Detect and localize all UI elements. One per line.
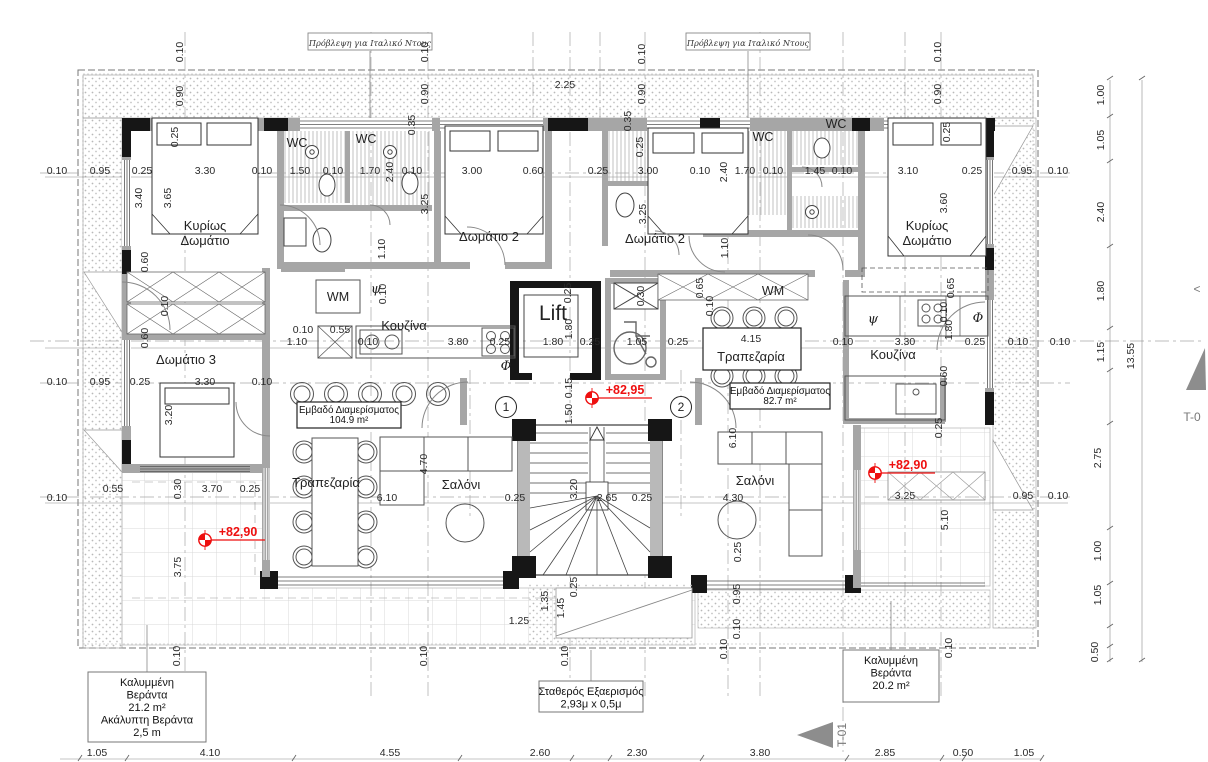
dim-label: 2.40	[384, 162, 396, 183]
room-label: Δωμάτιο	[180, 233, 229, 248]
elevation-marker: +82,95	[586, 383, 652, 408]
info-box-text: 20.2 m²	[872, 680, 910, 692]
dim-label: 0.25	[668, 336, 689, 348]
room-label: Δωμάτιο 3	[156, 352, 216, 367]
grid-bubble-number: 2	[678, 400, 685, 414]
dim-label: 2.65	[597, 492, 618, 504]
room-label: Κυρίως	[906, 218, 948, 233]
dim-label: 0.10	[47, 376, 68, 388]
dim-label: 0.60	[523, 165, 544, 177]
dim-label: 2.75	[1092, 448, 1104, 469]
room-label: Κυρίως	[184, 218, 226, 233]
dim-label: 1.45	[805, 165, 826, 177]
dim-label: 2.40	[718, 162, 730, 183]
dim-label: 0.10	[943, 638, 955, 659]
dim-label: 0.10	[1050, 336, 1071, 348]
dim-label: 2.40	[1095, 202, 1107, 223]
dim-label: 0.10	[358, 336, 379, 348]
fixture-label: WM	[327, 290, 349, 304]
dim-label: 3.00	[638, 165, 659, 177]
dim-label: 0.95	[90, 376, 111, 388]
elevation-value: +82,90	[219, 525, 258, 539]
dim-label: 0.10	[402, 165, 423, 177]
dim-label: 0.65	[945, 278, 957, 299]
dim-label: 4.30	[723, 492, 744, 504]
fixture-label: WC	[826, 117, 847, 131]
dim-label: 0.10	[833, 336, 854, 348]
dim-label: 0.30	[172, 479, 184, 500]
dim-label: 4.15	[741, 333, 762, 345]
dim-label: 0.15	[563, 378, 575, 399]
room-label: Τραπεζαρία	[292, 475, 360, 490]
dim-label: 0.10	[832, 165, 853, 177]
dim-label: 0.60	[139, 252, 151, 273]
fixture-label: Φ	[973, 311, 984, 326]
dim-label: 1.15	[1095, 342, 1107, 363]
dim-label: 0.55	[330, 324, 351, 336]
dim-label: 0.10	[377, 284, 389, 305]
bed-room2-right	[648, 128, 748, 234]
dim-label: 1.00	[1095, 85, 1107, 106]
dim-label: 0.95	[1013, 490, 1034, 502]
fixture-label: ψ	[868, 312, 879, 327]
floor-plan-canvas: Πρόβλεψη για Ιταλικό ΝτουςΠρόβλεψη για Ι…	[0, 0, 1208, 762]
dim-label: 0.10	[252, 376, 273, 388]
note-text: Πρόβλεψη για Ιταλικό Ντους	[308, 38, 432, 48]
fixture-label: WC	[753, 130, 774, 144]
dim-label: 1.05	[87, 747, 108, 759]
dim-label: 0.10	[932, 42, 944, 63]
dim-label: 0.90	[932, 84, 944, 105]
dim-label: 1.00	[1092, 541, 1104, 562]
dim-label: 3.00	[462, 165, 483, 177]
dim-label: 2.60	[530, 747, 551, 759]
dim-label: 3.80	[750, 747, 771, 759]
dim-label: 0.95	[731, 584, 743, 605]
dim-label: 1.70	[735, 165, 756, 177]
dim-label: 0.10	[1008, 336, 1029, 348]
dim-label: 0.10	[252, 165, 273, 177]
dim-label: 3.70	[202, 483, 223, 495]
dim-label: 4.10	[200, 747, 221, 759]
dim-label: 3.40	[133, 188, 145, 209]
dim-label: 0.90	[174, 86, 186, 107]
dim-label: 0.25	[588, 165, 609, 177]
section-triangle	[1186, 348, 1206, 390]
dim-label: 0.10	[159, 296, 171, 317]
dim-label: 0.30	[635, 286, 647, 307]
dim-label: 3.65	[162, 188, 174, 209]
dim-label: 0.10	[293, 324, 314, 336]
dim-label: 0.10	[419, 42, 431, 63]
note-boxes: Πρόβλεψη για Ιταλικό ΝτουςΠρόβλεψη για Ι…	[308, 33, 810, 50]
dim-label: 0.10	[1048, 165, 1069, 177]
dim-label: 0.50	[953, 747, 974, 759]
dim-label: 0.90	[636, 84, 648, 105]
dim-label: 1.05	[1095, 130, 1107, 151]
dim-label: 0.25	[568, 577, 580, 598]
fixture-label: WC	[356, 132, 377, 146]
dim-label: 0.25	[632, 492, 653, 504]
dim-label: 3.30	[895, 336, 916, 348]
dim-label: 0.10	[559, 646, 571, 667]
section-label: T-0	[1183, 410, 1201, 424]
dim-label: 0.95	[1012, 165, 1033, 177]
floor-plan-svg: Πρόβλεψη για Ιταλικό ΝτουςΠρόβλεψη για Ι…	[0, 0, 1208, 762]
fixture-label: Φ	[501, 359, 512, 374]
dim-label: 0.35	[406, 115, 418, 136]
dim-label: 3.20	[568, 479, 580, 500]
dim-label: 0.10	[731, 619, 743, 640]
dim-label: 0.60	[938, 366, 950, 387]
dim-label: 0.10	[323, 165, 344, 177]
dim-label: 0.25	[933, 418, 945, 439]
room-label: Σαλόνι	[442, 477, 481, 492]
info-box-text: Καλυμμένη	[864, 655, 918, 667]
info-box-text: Σταθερός Εξαερισμός	[538, 686, 643, 698]
area-tag-text: 104.9 m²	[330, 415, 369, 426]
dim-label: 1.10	[287, 336, 308, 348]
dim-label: 1.25	[509, 615, 530, 627]
dim-label: 1.05	[627, 336, 648, 348]
dim-label: 3.10	[898, 165, 919, 177]
dim-label: 0.25	[732, 542, 744, 563]
dim-label: 0.25	[965, 336, 986, 348]
dim-label: 1.10	[376, 239, 388, 260]
bed-room2-left	[445, 126, 543, 234]
dim-label: 1.50	[290, 165, 311, 177]
dim-label: 1.80	[1095, 281, 1107, 302]
section-label: <	[1193, 282, 1200, 296]
dim-label: 0.10	[938, 302, 950, 323]
info-box-text: 21.2 m²	[128, 702, 166, 714]
grid-bubble-number: 1	[503, 400, 510, 414]
dim-label: 0.10	[718, 639, 730, 660]
dim-label: 3.60	[938, 193, 950, 214]
fixture-label: WM	[762, 284, 784, 298]
dim-label: 2.30	[627, 747, 648, 759]
dim-label: 1.35	[539, 591, 551, 612]
dim-label: 3.25	[637, 204, 649, 225]
dim-label: 0.10	[636, 44, 648, 65]
dim-label: 6.10	[377, 492, 398, 504]
dim-label: 0.90	[419, 84, 431, 105]
area-tag-text: 82.7 m²	[763, 396, 797, 407]
elevation-value: +82,90	[889, 458, 928, 472]
room-label: Δωμάτιο 2	[459, 229, 519, 244]
dim-label: 0.10	[418, 646, 430, 667]
dim-label: 0.55	[103, 483, 124, 495]
dim-label: 13.55	[1125, 343, 1137, 369]
dim-label: 3.75	[172, 557, 184, 578]
dim-label: 4.55	[380, 747, 401, 759]
dim-label: 0.25	[962, 165, 983, 177]
dim-label: 0.25	[634, 137, 646, 158]
room-label: Κουζίνα	[381, 318, 427, 333]
dim-label: 1.50	[563, 404, 575, 425]
info-box-text: Βεράντα	[127, 690, 169, 702]
dim-label: 1.80	[943, 320, 955, 341]
dim-label: 2.85	[875, 747, 896, 759]
dim-label: 3.30	[195, 376, 216, 388]
dim-label: 0.25	[240, 483, 261, 495]
dim-label: 0.10	[690, 165, 711, 177]
dim-label: 5.10	[939, 510, 951, 531]
dim-label: 0.25	[505, 492, 526, 504]
dining-right	[703, 307, 801, 387]
section-triangle	[797, 722, 833, 748]
dim-label: 4.70	[418, 454, 430, 475]
dim-label: 3.25	[419, 194, 431, 215]
dim-label: 0.10	[47, 492, 68, 504]
info-box-text: Βεράντα	[871, 668, 913, 680]
dim-label: 1.80	[543, 336, 564, 348]
room-label: Δωμάτιο 2	[625, 231, 685, 246]
dim-label: 0.10	[1048, 490, 1069, 502]
dim-label: 0.65	[694, 278, 706, 299]
dim-label: 0.25	[580, 336, 601, 348]
room-label: Σαλόνι	[736, 473, 775, 488]
dim-label: 0.25	[941, 122, 953, 143]
dim-label: 1.70	[360, 165, 381, 177]
dim-label: 0.60	[139, 328, 151, 349]
dim-label: 1.80	[563, 319, 575, 340]
info-boxes: ΚαλυμμένηΒεράντα21.2 m²Ακάλυπτη Βεράντα2…	[88, 650, 939, 742]
dim-label: 0.25	[130, 376, 151, 388]
dim-label: 0.10	[174, 42, 186, 63]
dim-label: 0.25	[490, 336, 511, 348]
dim-label: 3.20	[163, 405, 175, 426]
dim-label: 0.25	[562, 283, 574, 304]
dim-label: 0.95	[90, 165, 111, 177]
dim-label: 0.50	[1089, 642, 1101, 663]
elevation-value: +82,95	[606, 383, 645, 397]
dim-label: 0.35	[622, 111, 634, 132]
info-box-text: 2,5 m	[133, 727, 161, 739]
dim-label: 1.45	[555, 598, 567, 619]
dim-label: 0.25	[169, 127, 181, 148]
dim-label: 3.30	[195, 165, 216, 177]
note-text: Πρόβλεψη για Ιταλικό Ντους	[686, 38, 810, 48]
dim-label: 1.05	[1014, 747, 1035, 759]
dim-label: 3.25	[895, 490, 916, 502]
dim-label: 1.05	[1092, 585, 1104, 606]
dim-label: 2.25	[555, 79, 576, 91]
dim-label: 0.10	[47, 165, 68, 177]
room-label: Δωμάτιο	[902, 233, 951, 248]
dim-label: 0.25	[132, 165, 153, 177]
dim-label: 0.10	[763, 165, 784, 177]
info-box-text: Καλυμμένη	[120, 677, 174, 689]
dim-label: 1.10	[719, 238, 731, 259]
room-label: Τραπεζαρία	[717, 349, 785, 364]
dim-label: 0.10	[171, 646, 183, 667]
fixture-label: WC	[287, 136, 308, 150]
dim-label: 6.10	[727, 428, 739, 449]
info-box-text: Ακάλυπτη Βεράντα	[101, 715, 194, 727]
dim-label: 0.10	[704, 296, 716, 317]
info-box-text: 2,93μ x 0,5μ	[561, 699, 622, 711]
section-label: T-01	[835, 723, 849, 747]
dim-label: 3.80	[448, 336, 469, 348]
room-label: Κουζίνα	[870, 347, 916, 362]
